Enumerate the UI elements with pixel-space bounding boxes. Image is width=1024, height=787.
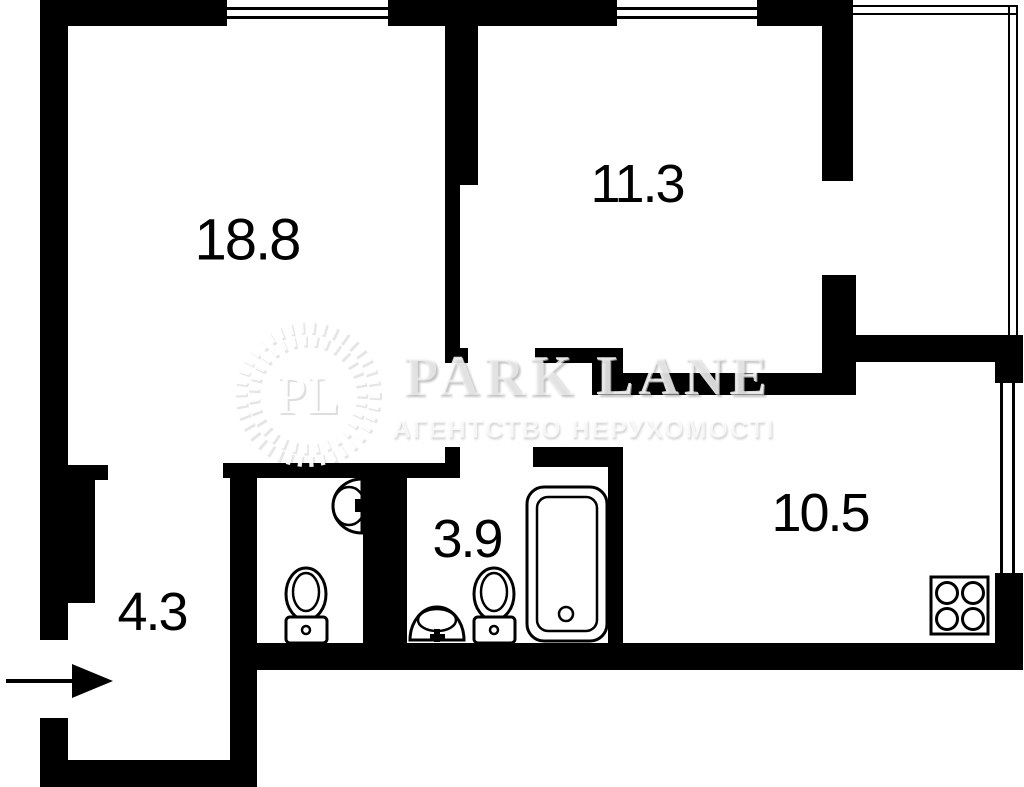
wall-segment bbox=[822, 0, 853, 181]
watermark-tagline-text: АГЕНТСТВО НЕРУХОМОСТІ bbox=[393, 416, 776, 445]
bathtub-icon bbox=[527, 487, 607, 641]
bathroom-sink-icon bbox=[410, 607, 464, 642]
wc-sink-icon bbox=[333, 479, 365, 533]
laurel-wreath-icon: PL PL bbox=[222, 308, 394, 480]
wall-segment bbox=[592, 348, 623, 395]
wall-segment bbox=[363, 478, 407, 643]
wall-segment bbox=[995, 573, 1023, 670]
wall-segment bbox=[822, 275, 856, 395]
window-glass-line bbox=[617, 16, 757, 19]
balcony-glazing-line bbox=[853, 13, 1018, 15]
wall-segment bbox=[40, 0, 68, 640]
window-opening bbox=[617, 0, 757, 26]
room-area-label-3-9: 3.9 bbox=[432, 508, 501, 570]
window-glass-line bbox=[227, 16, 388, 19]
window-glass-line bbox=[1012, 383, 1015, 573]
wall-segment bbox=[445, 185, 460, 363]
wall-segment bbox=[230, 643, 1023, 670]
wall-segment bbox=[853, 335, 1023, 362]
window-glass-line bbox=[617, 7, 757, 10]
watermark-monogram-shadow: PL bbox=[278, 367, 341, 427]
wall-segment bbox=[67, 465, 108, 480]
balcony-glazing-line bbox=[853, 5, 1018, 7]
wall-segment bbox=[995, 362, 1023, 383]
room-area-label-10-5: 10.5 bbox=[771, 482, 868, 544]
wall-segment bbox=[223, 463, 460, 478]
wall-segment bbox=[67, 480, 95, 603]
wall-segment bbox=[445, 447, 460, 465]
window-opening bbox=[227, 0, 388, 26]
wall-segment bbox=[388, 0, 617, 26]
balcony-glazing-line bbox=[1008, 5, 1010, 335]
stove-icon bbox=[931, 577, 988, 634]
watermark-monogram: PL bbox=[276, 365, 339, 425]
room-area-label-11-3: 11.3 bbox=[590, 153, 683, 215]
room-area-label-4-3: 4.3 bbox=[117, 581, 186, 643]
wall-segment bbox=[608, 448, 623, 643]
wall-segment bbox=[445, 0, 478, 185]
balcony-glazing-line bbox=[1016, 5, 1018, 335]
floor-plan: PL PL PARK LANE АГЕНТСТВО НЕРУХОМОСТІ 18… bbox=[0, 0, 1024, 787]
wall-segment bbox=[230, 478, 257, 787]
room-area-label-18-8: 18.8 bbox=[195, 207, 300, 274]
wall-segment bbox=[40, 0, 227, 26]
window-glass-line bbox=[1000, 383, 1003, 573]
entrance-arrow-icon bbox=[6, 664, 113, 698]
wall-segment bbox=[445, 348, 468, 363]
window-glass-line bbox=[227, 7, 388, 10]
wc-toilet-icon bbox=[286, 568, 327, 643]
bathroom-toilet-icon bbox=[474, 568, 515, 643]
wall-segment bbox=[40, 760, 257, 787]
wall-segment bbox=[603, 373, 822, 395]
